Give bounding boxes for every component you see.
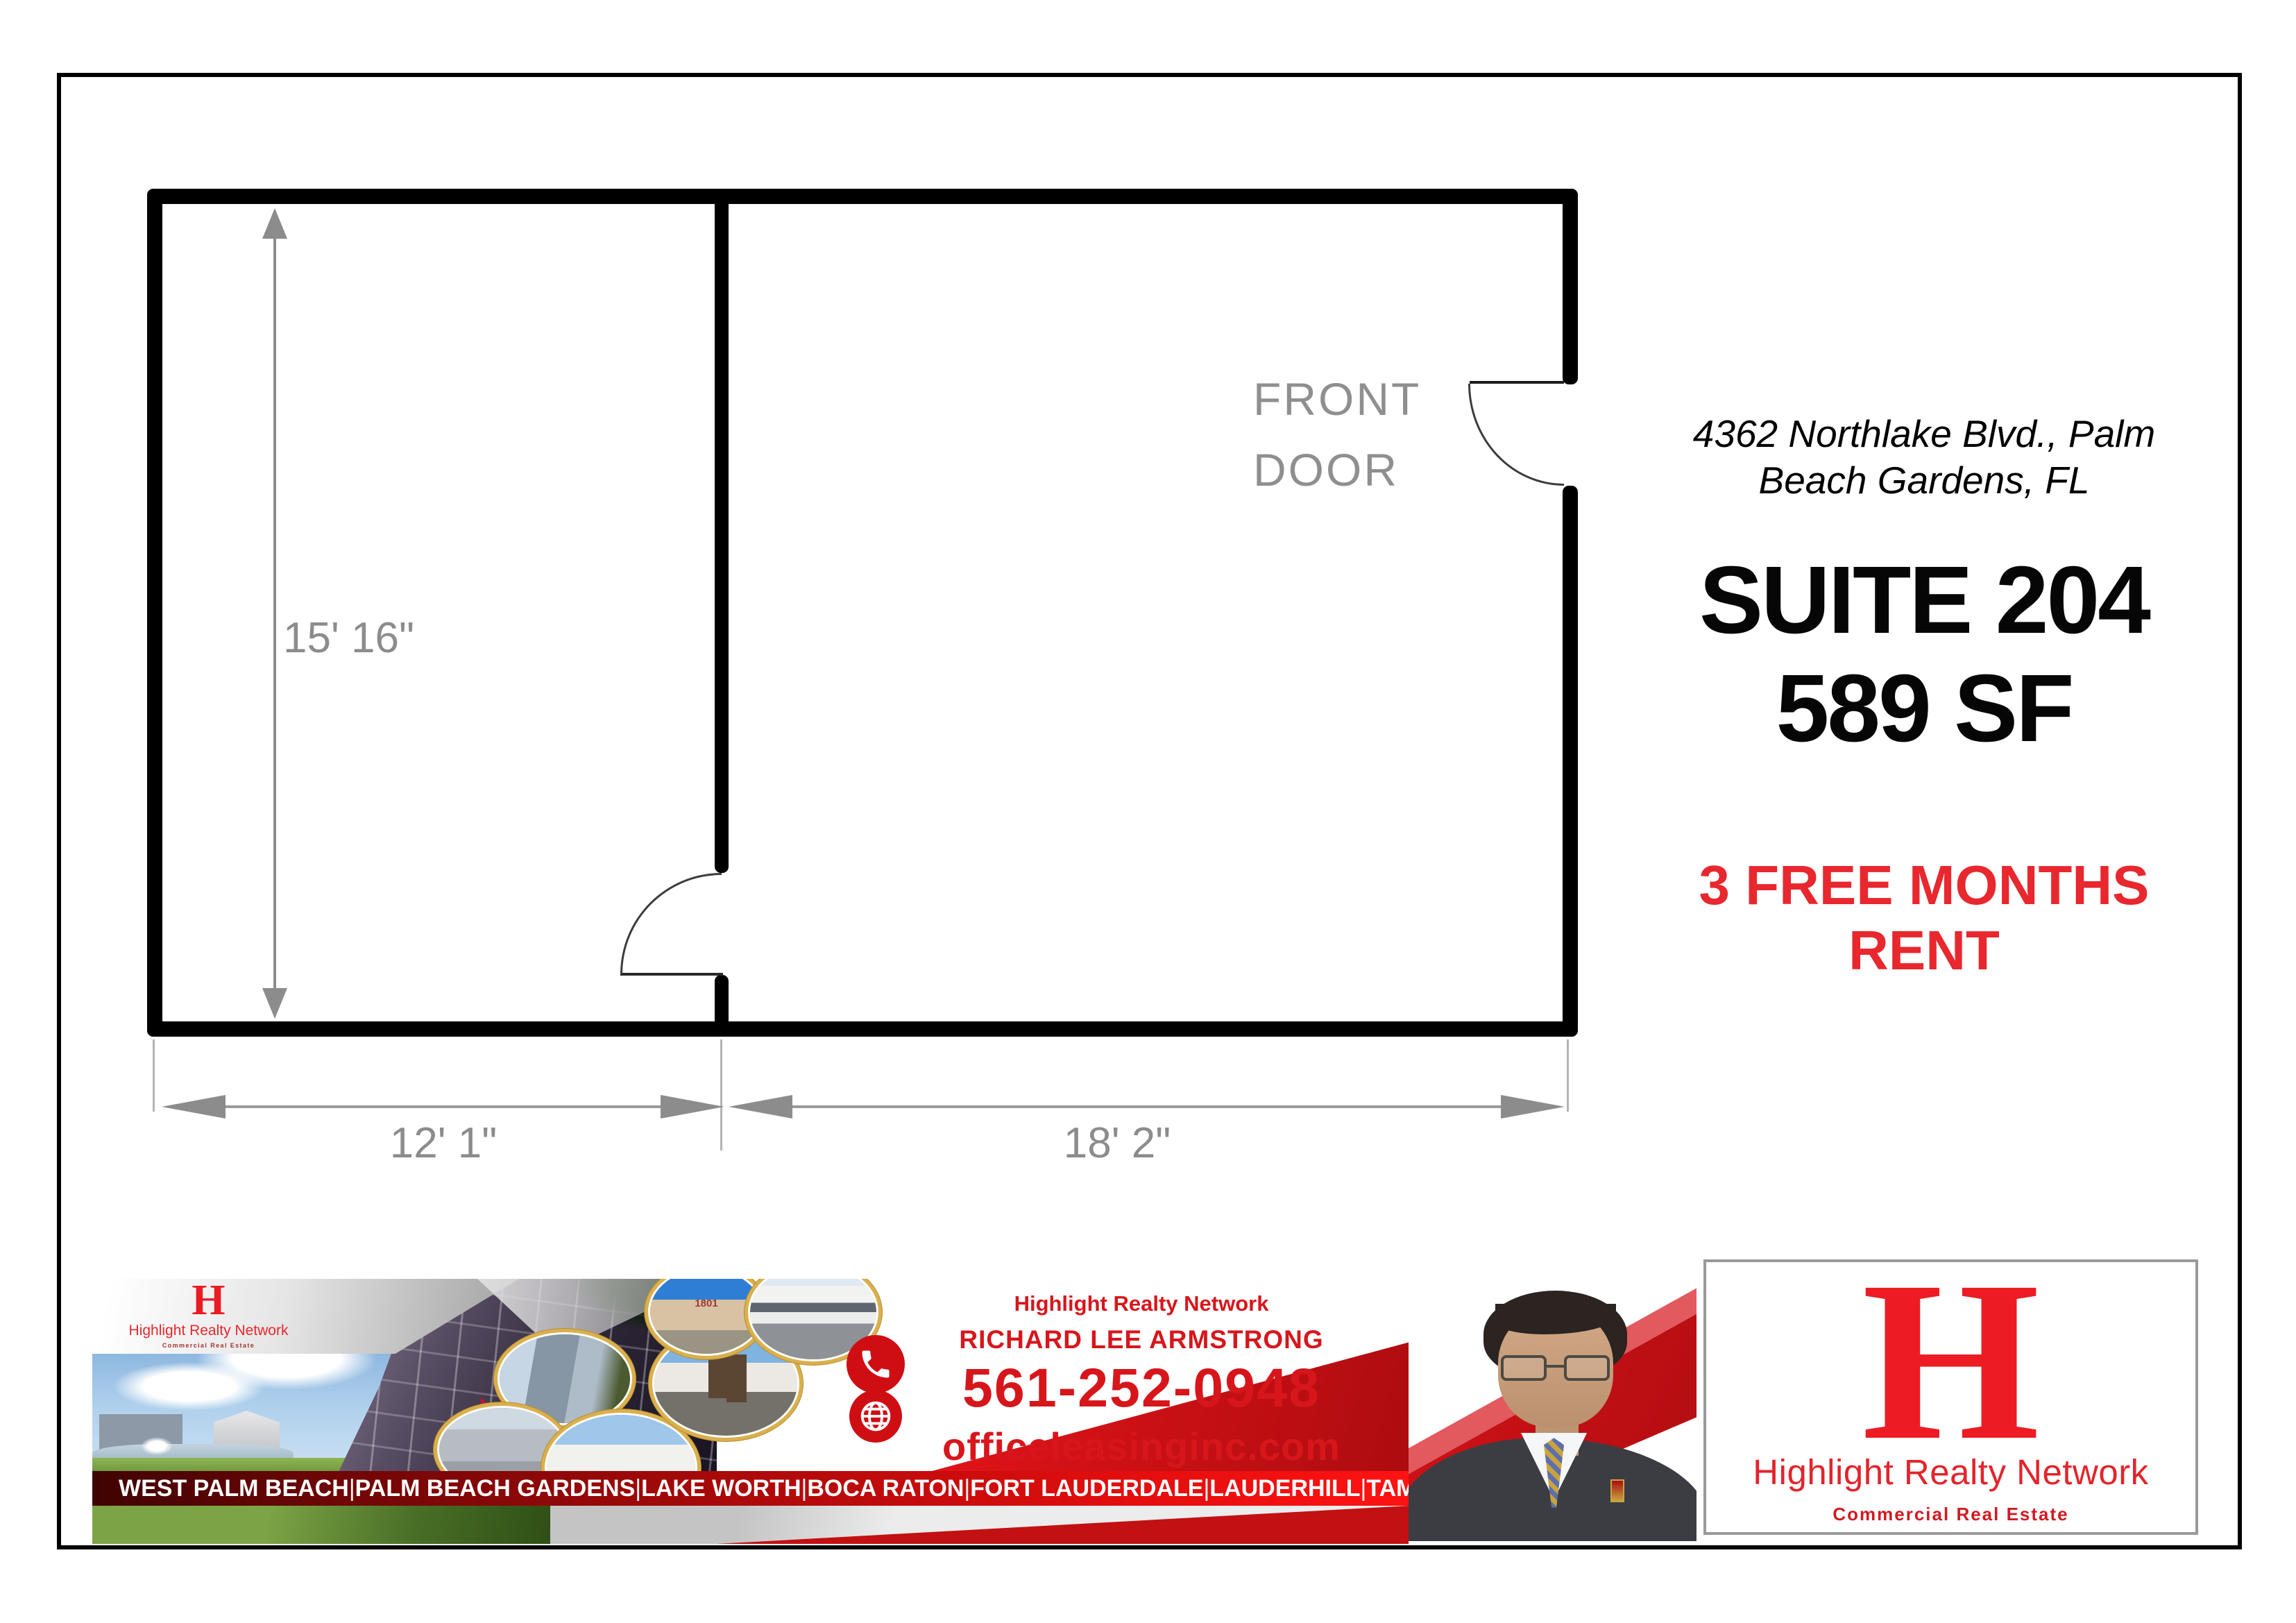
- city-separator: |: [1361, 1475, 1367, 1502]
- wall-top: [147, 189, 1578, 204]
- brand-monogram: H: [120, 1280, 297, 1321]
- city-separator: |: [349, 1475, 355, 1502]
- brand-monogram-large: H: [1706, 1272, 2195, 1450]
- brand-name: Highlight Realty Network: [120, 1323, 297, 1339]
- city-name: LAKE WORTH: [641, 1475, 801, 1502]
- suite-title: SUITE 204: [1679, 545, 2169, 656]
- agent-website: officeleasinginc.com: [878, 1424, 1405, 1469]
- promo-line-1: 3 FREE MONTHS: [1679, 853, 2169, 917]
- agent-portrait: [1409, 1283, 1697, 1541]
- brand-name-large: Highlight Realty Network: [1706, 1452, 2195, 1493]
- banner-lower-sliver: [92, 1506, 1409, 1544]
- dimension-label-left-room: 12' 1": [162, 1119, 725, 1168]
- dimension-line-right-room: [791, 1105, 1502, 1108]
- city-separator: |: [801, 1475, 808, 1502]
- arrow-up-icon: [262, 208, 287, 239]
- wall-left: [147, 189, 162, 1037]
- dimension-line-left-room: [222, 1105, 662, 1108]
- city-name: PALM BEACH GARDENS: [355, 1475, 636, 1502]
- agent-phone: 561-252-0948: [878, 1356, 1405, 1420]
- network-title: Highlight Realty Network: [878, 1291, 1405, 1316]
- city-separator: |: [1203, 1475, 1209, 1502]
- city-separator: |: [964, 1475, 970, 1502]
- vertical-dimension-line: [273, 235, 276, 992]
- agent-banner: H Highlight Realty Network Commercial Re…: [92, 1279, 1697, 1544]
- city-name: WEST PALM BEACH: [119, 1475, 349, 1502]
- brand-tagline-large: Commercial Real Estate: [1706, 1504, 2195, 1525]
- arrow-right-icon: [661, 1095, 724, 1119]
- dimension-label-right-room: 18' 2": [729, 1119, 1506, 1168]
- building-number-label: 1801: [650, 1298, 763, 1309]
- fountain: [141, 1437, 173, 1455]
- arrow-left-icon: [162, 1095, 226, 1119]
- city-name: BOCA RATON: [807, 1475, 964, 1502]
- dimension-label-height: 15' 16": [283, 613, 414, 663]
- arrow-right-icon: [1501, 1095, 1565, 1119]
- extension-line-left: [153, 1039, 155, 1112]
- agent-glasses: [1501, 1355, 1610, 1381]
- front-door-label: FRONT DOOR: [1253, 364, 1421, 505]
- dividing-wall-upper: [715, 193, 729, 873]
- wall-right-upper: [1563, 189, 1578, 384]
- arrow-left-icon: [729, 1095, 792, 1119]
- brand-logo-small: H Highlight Realty Network Commercial Re…: [120, 1280, 297, 1349]
- city-strip: WEST PALM BEACH|PALM BEACH GARDENS|LAKE …: [92, 1471, 1409, 1506]
- wall-right-lower: [1563, 486, 1578, 1037]
- city-name: FORT LAUDERDALE: [970, 1475, 1203, 1502]
- brand-logo-box: H Highlight Realty Network Commercial Re…: [1703, 1259, 2198, 1535]
- agent-contact-block: Highlight Realty Network RICHARD LEE ARM…: [878, 1279, 1405, 1469]
- city-separator: |: [635, 1475, 641, 1502]
- suite-area: 589 SF: [1679, 654, 2169, 764]
- extension-line-right: [1567, 1039, 1569, 1112]
- arrow-down-icon: [262, 988, 287, 1019]
- grass-photo-sliver: [92, 1506, 550, 1544]
- agent-name: RICHARD LEE ARMSTRONG: [878, 1325, 1405, 1354]
- brand-tagline: Commercial Real Estate: [120, 1342, 297, 1349]
- wall-bottom: [147, 1021, 1578, 1037]
- property-address: 4362 Northlake Blvd., Palm Beach Gardens…: [1679, 411, 2169, 504]
- city-name: LAUDERHILL: [1209, 1475, 1360, 1502]
- dividing-wall-lower: [715, 975, 729, 1037]
- lapel-pin: [1610, 1479, 1625, 1502]
- promo-line-2: RENT: [1679, 919, 2169, 983]
